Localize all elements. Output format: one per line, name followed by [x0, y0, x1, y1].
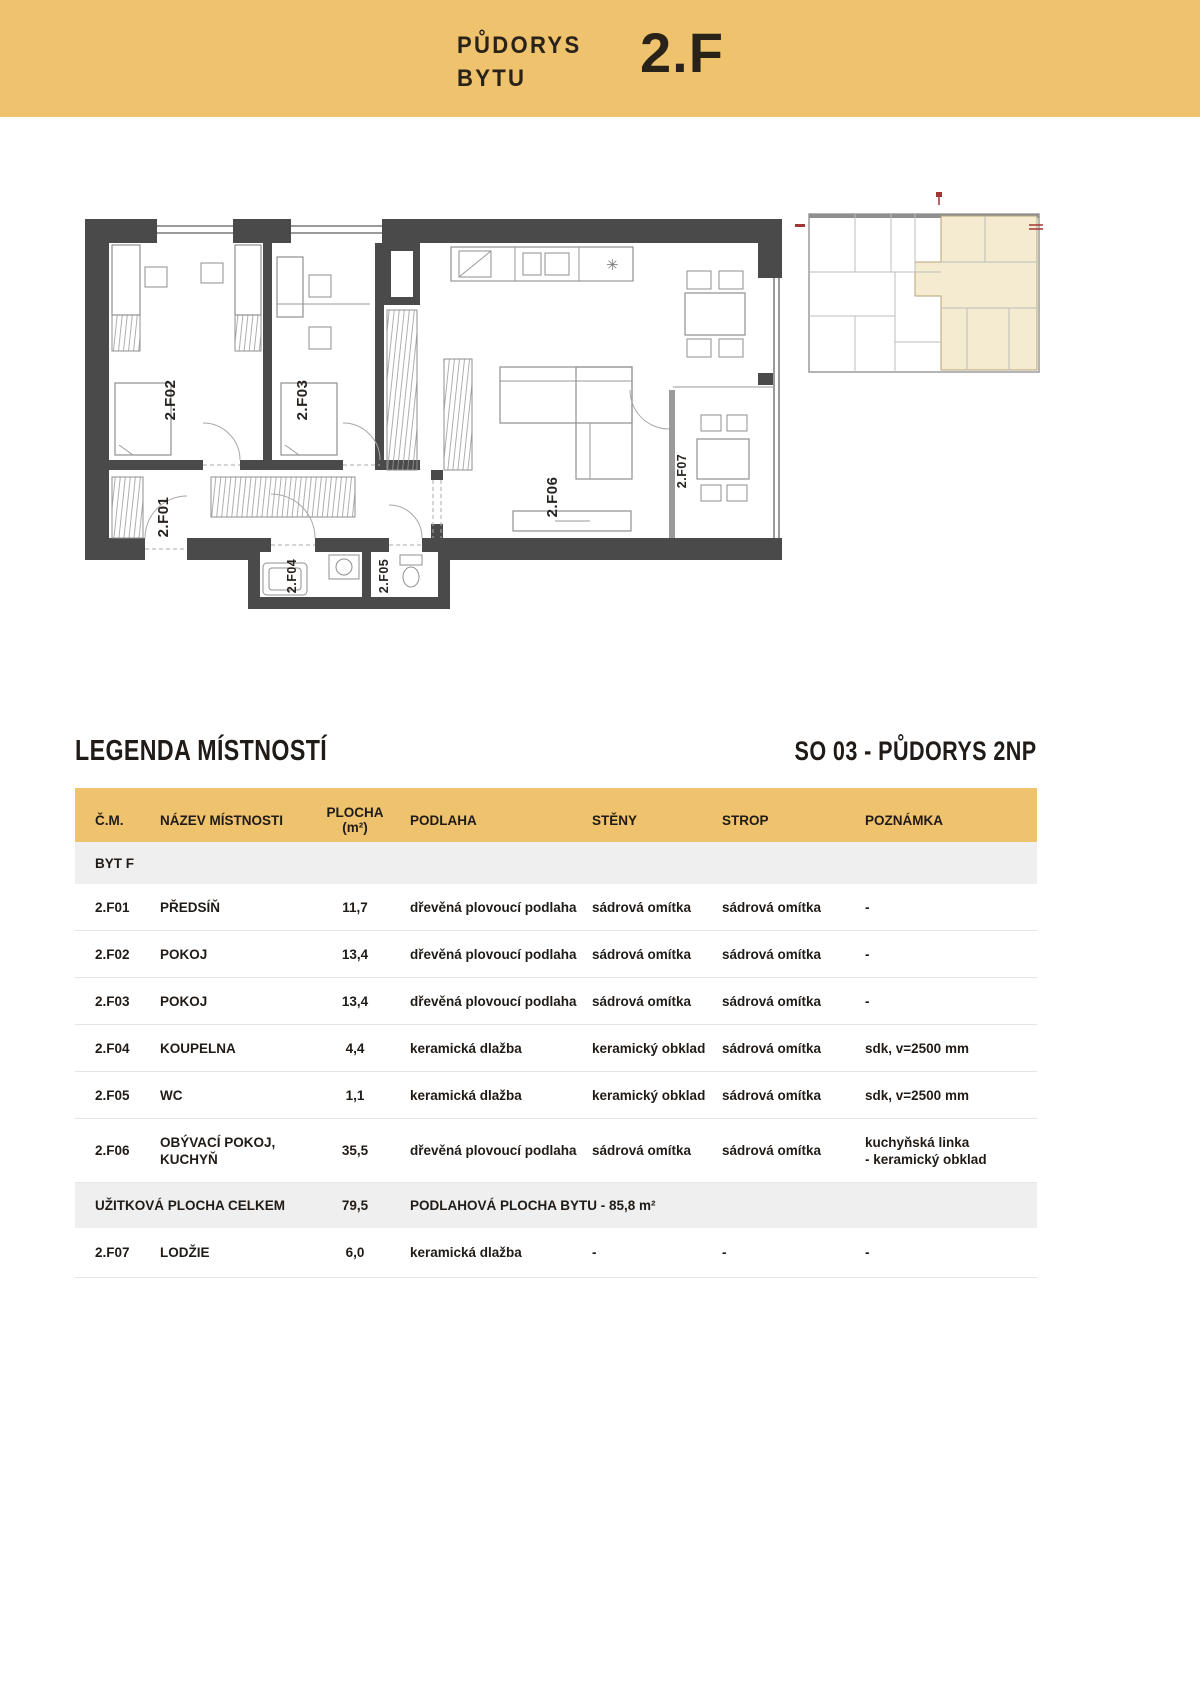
cell-id: 2.F03 — [75, 993, 140, 1010]
header-banner: PŮDORYS BYTU 2.F — [0, 0, 1200, 117]
cell-id: 2.F07 — [75, 1244, 140, 1261]
cell-walls: - — [577, 1244, 707, 1261]
room-label-f03: 2.F03 — [294, 380, 311, 421]
cell-ceiling: sádrová omítka — [707, 1142, 850, 1159]
room-label-f06: 2.F06 — [544, 477, 561, 518]
cell-ceiling: sádrová omítka — [707, 993, 850, 1010]
cell-area: 13,4 — [315, 946, 395, 963]
col-note: POZNÁMKA — [850, 812, 1037, 829]
col-ceiling: STROP — [707, 812, 850, 829]
cell-name: WC — [140, 1087, 315, 1104]
legend-subtitle: SO 03 - PŮDORYS 2NP — [795, 736, 1037, 767]
cell-area: 35,5 — [315, 1142, 395, 1159]
banner-title-line1: PŮDORYS — [457, 29, 581, 62]
cell-floor: dřevěná plovoucí podlaha — [395, 946, 577, 963]
cell-id: 2.F05 — [75, 1087, 140, 1104]
col-area-line2: (m²) — [315, 820, 395, 835]
table-rows: 2.F01PŘEDSÍŇ11,7dřevěná plovoucí podlaha… — [75, 884, 1037, 1183]
cell-name: PŘEDSÍŇ — [140, 899, 315, 916]
banner-title: PŮDORYS BYTU — [457, 29, 581, 95]
table-row: 2.F05WC1,1keramická dlažbakeramický obkl… — [75, 1072, 1037, 1119]
cell-id: 2.F06 — [75, 1142, 140, 1159]
cell-name: POKOJ — [140, 993, 315, 1010]
cell-note: - — [850, 1244, 1037, 1261]
legend-heading: LEGENDA MÍSTNOSTÍ SO 03 - PŮDORYS 2NP — [75, 733, 1037, 769]
table-row: 2.F04KOUPELNA4,4keramická dlažbakeramick… — [75, 1025, 1037, 1072]
room-label-f07: 2.F07 — [675, 454, 689, 488]
cell-note: - — [850, 993, 1037, 1010]
cell-floor: keramická dlažba — [395, 1244, 577, 1261]
cell-walls: sádrová omítka — [577, 1142, 707, 1159]
col-walls: STĚNY — [577, 812, 707, 829]
cell-note: sdk, v=2500 mm — [850, 1087, 1037, 1104]
table-row: 2.F03POKOJ13,4dřevěná plovoucí podlahasá… — [75, 978, 1037, 1025]
cell-area: 11,7 — [315, 899, 395, 916]
apartment-floorplan: ✳ — [85, 215, 785, 615]
room-label-f02: 2.F02 — [162, 380, 179, 421]
cell-walls: keramický obklad — [577, 1087, 707, 1104]
total-note: PODLAHOVÁ PLOCHA BYTU - 85,8 m² — [395, 1197, 1037, 1214]
page: PŮDORYS BYTU 2.F — [0, 0, 1200, 1698]
apartment-unit-label: 2.F — [640, 20, 724, 85]
cell-name: LODŽIE — [140, 1244, 315, 1261]
floorplan-drawing: ✳ — [85, 215, 785, 615]
overview-drawing — [795, 192, 1045, 384]
legend-table: Č.M. NÁZEV MÍSTNOSTI PLOCHA (m²) PODLAHA… — [75, 788, 1037, 1278]
cell-ceiling: sádrová omítka — [707, 899, 850, 916]
section-marker-top — [936, 192, 942, 197]
appliance-star-icon: ✳ — [606, 256, 619, 274]
cell-area: 1,1 — [315, 1087, 395, 1104]
cell-ceiling: sádrová omítka — [707, 946, 850, 963]
cell-note: kuchyňská linka - keramický obklad — [850, 1134, 1037, 1168]
total-row: UŽITKOVÁ PLOCHA CELKEM 79,5 PODLAHOVÁ PL… — [75, 1183, 1037, 1228]
cell-id: 2.F04 — [75, 1040, 140, 1057]
cell-ceiling: sádrová omítka — [707, 1040, 850, 1057]
cell-floor: keramická dlažba — [395, 1087, 577, 1104]
cell-floor: dřevěná plovoucí podlaha — [395, 1142, 577, 1159]
cell-floor: dřevěná plovoucí podlaha — [395, 993, 577, 1010]
col-area-line1: PLOCHA — [315, 805, 395, 820]
table-row-balcony: 2.F07 LODŽIE 6,0 keramická dlažba - - - — [75, 1228, 1037, 1278]
cell-walls: sádrová omítka — [577, 899, 707, 916]
col-floor: PODLAHA — [395, 812, 577, 829]
room-label-f01: 2.F01 — [155, 497, 172, 538]
cell-note: - — [850, 899, 1037, 916]
table-row: 2.F06OBÝVACÍ POKOJ, KUCHYŇ35,5dřevěná pl… — [75, 1119, 1037, 1183]
col-cm: Č.M. — [75, 812, 140, 829]
table-header: Č.M. NÁZEV MÍSTNOSTI PLOCHA (m²) PODLAHA… — [75, 788, 1037, 842]
cell-note: sdk, v=2500 mm — [850, 1040, 1037, 1057]
cell-name: OBÝVACÍ POKOJ, KUCHYŇ — [140, 1134, 315, 1168]
total-area: 79,5 — [315, 1197, 395, 1214]
col-area: PLOCHA (m²) — [315, 788, 395, 852]
cell-floor: keramická dlažba — [395, 1040, 577, 1057]
cell-name: KOUPELNA — [140, 1040, 315, 1057]
banner-title-line2: BYTU — [457, 62, 581, 95]
cell-id: 2.F01 — [75, 899, 140, 916]
table-row: 2.F02POKOJ13,4dřevěná plovoucí podlahasá… — [75, 931, 1037, 978]
group-label: BYT F — [75, 856, 315, 871]
cell-id: 2.F02 — [75, 946, 140, 963]
cell-ceiling: sádrová omítka — [707, 1087, 850, 1104]
cell-walls: sádrová omítka — [577, 993, 707, 1010]
total-label: UŽITKOVÁ PLOCHA CELKEM — [75, 1197, 315, 1214]
cell-area: 4,4 — [315, 1040, 395, 1057]
cell-area: 6,0 — [315, 1244, 395, 1261]
cell-floor: dřevěná plovoucí podlaha — [395, 899, 577, 916]
cell-name: POKOJ — [140, 946, 315, 963]
group-row: BYT F — [75, 842, 1037, 884]
cell-area: 13,4 — [315, 993, 395, 1010]
cell-walls: sádrová omítka — [577, 946, 707, 963]
col-name: NÁZEV MÍSTNOSTI — [140, 812, 315, 829]
cell-note: - — [850, 946, 1037, 963]
table-row: 2.F01PŘEDSÍŇ11,7dřevěná plovoucí podlaha… — [75, 884, 1037, 931]
cell-walls: keramický obklad — [577, 1040, 707, 1057]
legend-title: LEGENDA MÍSTNOSTÍ — [75, 735, 327, 768]
cell-ceiling: - — [707, 1244, 850, 1261]
section-marker-left — [795, 224, 805, 227]
floor-overview-plan — [795, 192, 1045, 384]
room-label-f04: 2.F04 — [285, 559, 299, 593]
room-label-f05: 2.F05 — [377, 559, 391, 593]
